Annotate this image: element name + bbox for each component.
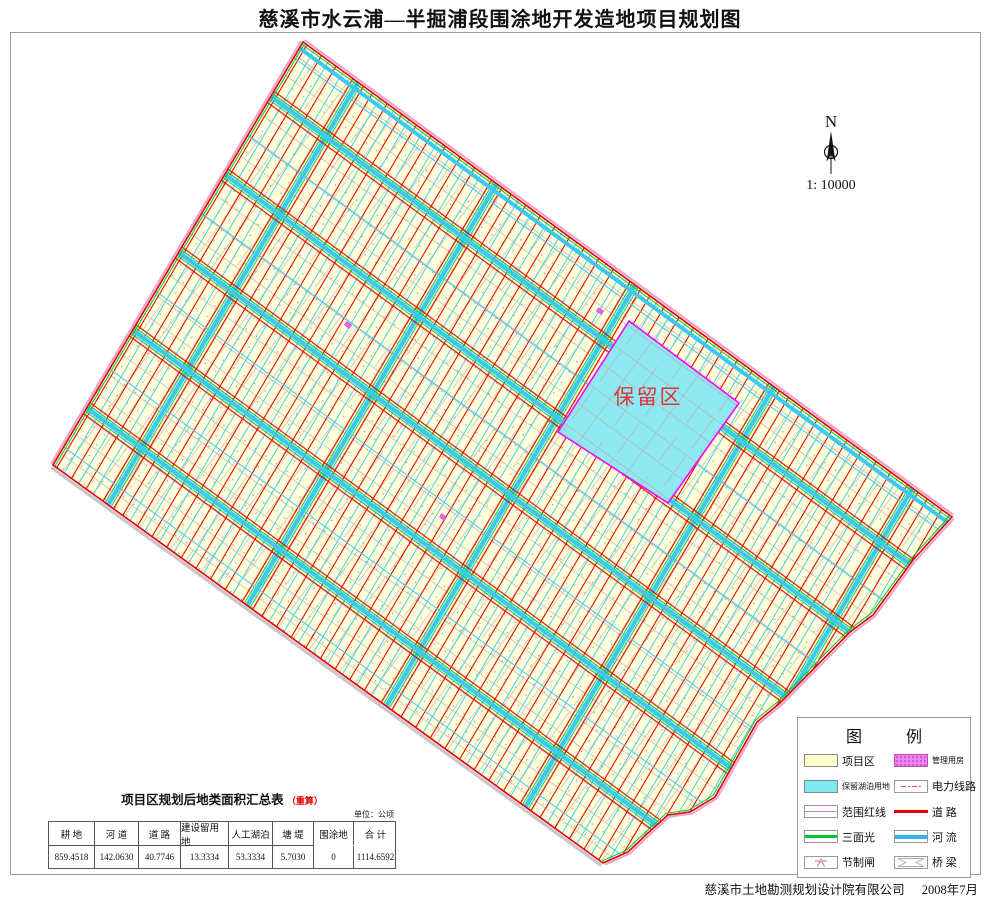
footer-credit: 慈溪市土地勘测规划设计院有限公司 2008年7月 — [705, 879, 978, 898]
area-value: 0 — [314, 846, 354, 868]
planning-map-sheet: 保留区 N 1: 10000 慈溪市水云浦—半掘浦段围涂地开发造地项目规划图 图… — [0, 0, 1000, 902]
legend-item-range-redline: 范围红线 — [804, 799, 894, 824]
legend-title-left: 图 — [846, 723, 862, 747]
area-summary: 项目区规划后地类面积汇总表 （重算） 单位：公顷 耕 地 河 道 道 路 建设留… — [48, 789, 396, 869]
legend-item-project-area: 项目区 — [804, 748, 894, 773]
reserved-area-label: 保留区 — [614, 385, 683, 409]
col-header: 耕 地 — [49, 822, 95, 846]
map-scale: 1: 10000 — [806, 178, 855, 193]
range-redline-swatch — [804, 805, 838, 818]
legend-item-sluice-gate: 节制闸 — [804, 850, 894, 875]
area-summary-note: （重算） — [287, 796, 323, 806]
area-summary-title: 项目区规划后地类面积汇总表 （重算） — [48, 789, 396, 808]
area-value: 859.4518 — [49, 846, 95, 868]
area-summary-table: 耕 地 河 道 道 路 建设留用地 人工湖泊 塘 堤 围涂地 合 计 859.4… — [48, 821, 396, 869]
north-arrow-icon: N — [825, 112, 838, 174]
legend-box: 图 例 项目区 保留湖泊用地 范围红线 — [797, 717, 971, 878]
area-value: 13.3334 — [181, 846, 229, 868]
legend-item-reserved-lake: 保留湖泊用地 — [804, 773, 894, 798]
legend-item-management-building: 管理用房 — [894, 748, 966, 773]
legend-item-three-sided-channel: 三面光 — [804, 824, 894, 849]
col-header: 河 道 — [95, 822, 139, 846]
three-sided-channel-swatch — [804, 830, 838, 843]
legend-item-power-line: 电力线路 — [894, 773, 966, 798]
legend-item-road: 道 路 — [894, 799, 966, 824]
project-area-swatch — [804, 754, 838, 767]
page-title: 慈溪市水云浦—半掘浦段围涂地开发造地项目规划图 — [0, 3, 1000, 32]
road-swatch — [894, 805, 928, 818]
north-label: N — [825, 112, 837, 131]
col-header: 建设留用地 — [181, 822, 229, 846]
col-header: 人工湖泊 — [229, 822, 273, 846]
power-line-swatch — [894, 780, 928, 793]
area-value: 5.7030 — [273, 846, 314, 868]
col-header: 塘 堤 — [273, 822, 314, 846]
area-value: 53.3334 — [229, 846, 273, 868]
river-swatch — [894, 830, 928, 843]
sluice-gate-icon — [804, 856, 838, 869]
design-institute: 慈溪市土地勘测规划设计院有限公司 — [705, 883, 905, 897]
area-summary-unit: 单位：公顷 — [48, 809, 394, 820]
area-value: 1114.6592 — [354, 846, 397, 868]
area-value: 142.0630 — [95, 846, 139, 868]
legend-item-river: 河 流 — [894, 824, 966, 849]
area-value: 40.7746 — [139, 846, 181, 868]
col-header: 道 路 — [139, 822, 181, 846]
legend-item-bridge: 桥 梁 — [894, 850, 966, 875]
col-header: 合 计 — [354, 822, 397, 845]
legend-title: 图 例 — [798, 723, 970, 747]
reserved-lake-swatch — [804, 780, 838, 793]
drawing-date: 2008年7月 — [922, 883, 978, 897]
legend-title-right: 例 — [906, 723, 922, 747]
bridge-icon — [894, 856, 928, 869]
col-header: 围涂地 — [314, 822, 354, 845]
management-building-swatch — [894, 754, 928, 767]
